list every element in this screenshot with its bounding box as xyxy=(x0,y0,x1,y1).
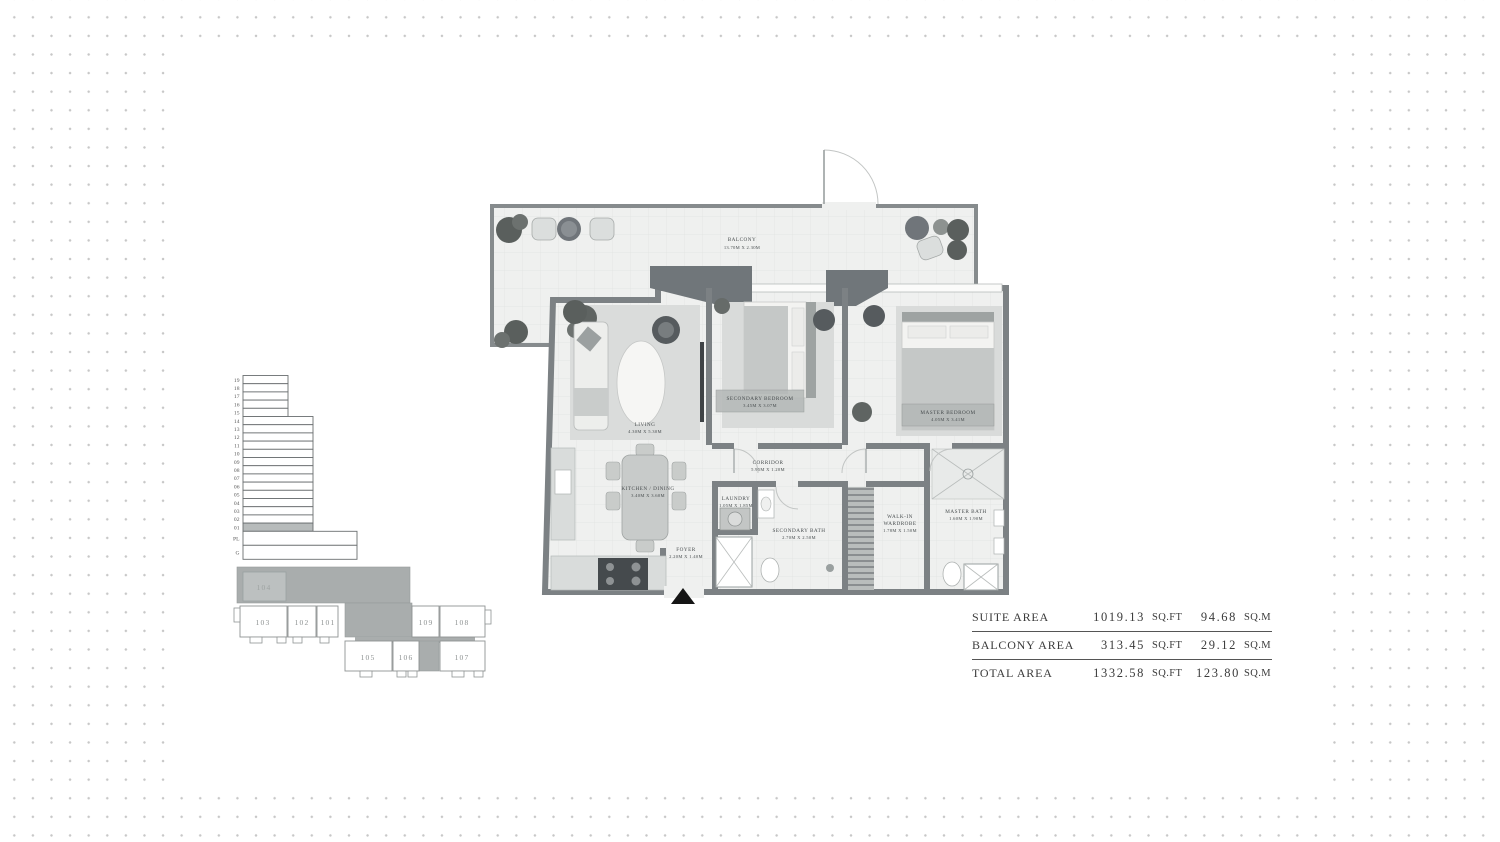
bed-headboard xyxy=(902,312,994,322)
living-room xyxy=(567,305,704,440)
elevation-floor-row-11 xyxy=(243,441,313,449)
elevation-floor-row-10 xyxy=(243,449,313,457)
elevation-floor-label-12: 12 xyxy=(234,435,240,441)
area-label: BALCONY AREA xyxy=(972,638,1090,653)
secondary-bedroom xyxy=(714,298,835,428)
plant-icon xyxy=(852,402,872,422)
area-label: SUITE AREA xyxy=(972,610,1090,625)
building-elevation: 19181716151413121110090807060504030201PL… xyxy=(233,376,357,560)
plant-icon xyxy=(714,298,730,314)
elevation-floor-row-05 xyxy=(243,490,313,498)
kitchen-dining-label: KITCHEN / DINING xyxy=(621,486,674,492)
entry-door-arc xyxy=(824,150,878,204)
foyer-label: FOYER xyxy=(676,547,696,553)
pillow xyxy=(792,308,804,346)
floor-plan-drawing: 19181716151413121110090807060504030201PL… xyxy=(0,0,1500,842)
elevation-floor-label-11: 11 xyxy=(234,443,240,449)
area-row-suite: SUITE AREA 1019.13 SQ.FT 94.68 SQ.M xyxy=(972,604,1272,632)
kitchen-dining-dims: 3.40M X 3.60M xyxy=(631,493,665,498)
toilet xyxy=(943,562,961,586)
balcony-stool xyxy=(933,219,949,235)
burner xyxy=(606,563,614,571)
elevation-floor-label-16: 16 xyxy=(234,402,240,408)
unit-label-107: 107 xyxy=(455,653,470,662)
balcony-table xyxy=(905,216,929,240)
balcony-dims: 13.70M X 2.30M xyxy=(724,245,760,250)
balcony-chair xyxy=(590,218,614,240)
elevation-floor-row-17 xyxy=(243,392,288,400)
elevation-floor-row-G xyxy=(243,545,357,559)
area-sqft-unit: SQ.FT xyxy=(1152,640,1196,651)
living-dims: 4.30M X 5.30M xyxy=(628,429,662,434)
apartment-floor-plan: BALCONY 13.70M X 2.30M LIVING 4.30M X 5.… xyxy=(492,150,1006,604)
unit-label-103: 103 xyxy=(256,618,271,627)
elevation-floor-label-02: 02 xyxy=(234,517,240,523)
elevation-floor-label-14: 14 xyxy=(234,419,240,425)
laundry-label: LAUNDRY xyxy=(722,496,751,502)
area-sqm-value: 29.12 xyxy=(1196,638,1244,653)
unit-label-105: 105 xyxy=(361,653,376,662)
stove xyxy=(598,558,648,590)
key-plan-mass-center xyxy=(345,603,412,637)
elevation-floor-label-G: G xyxy=(235,551,239,557)
elevation-floor-label-19: 19 xyxy=(234,378,240,384)
dining-chair xyxy=(636,540,654,552)
area-sqft-value: 1019.13 xyxy=(1090,610,1152,625)
washing-machine-door xyxy=(728,512,742,526)
burner xyxy=(632,563,641,572)
elevation-floor-label-01: 01 xyxy=(234,525,240,531)
dining-chair xyxy=(672,462,686,480)
unit-label-109: 109 xyxy=(419,618,434,627)
area-table: SUITE AREA 1019.13 SQ.FT 94.68 SQ.M BALC… xyxy=(972,604,1272,687)
plant-icon xyxy=(563,300,587,324)
unit-key-plan: 104 103 102 101 109 108 105 106 107 xyxy=(234,567,491,677)
shower-drain xyxy=(826,564,834,572)
elevation-floor-row-04 xyxy=(243,499,313,507)
elevation-floor-row-06 xyxy=(243,482,313,490)
living-label: LIVING xyxy=(635,422,656,428)
elevation-floor-row-03 xyxy=(243,507,313,515)
elevation-floor-row-14 xyxy=(243,417,313,425)
area-sqm-unit: SQ.M xyxy=(1244,612,1272,623)
armchair xyxy=(813,309,835,331)
plant-icon xyxy=(512,214,528,230)
sink xyxy=(994,510,1004,526)
key-plan-mass-small xyxy=(419,641,439,671)
elevation-floor-row-15 xyxy=(243,408,288,416)
elevation-floor-label-09: 09 xyxy=(234,460,240,466)
tv-console xyxy=(700,342,704,422)
unit-label-102: 102 xyxy=(295,618,310,627)
secondary-bedroom-dims: 3.45M X 3.07M xyxy=(743,403,777,408)
elevation-floor-row-02 xyxy=(243,515,313,523)
master-bath-label: MASTER BATH xyxy=(945,509,986,515)
master-bath-dims: 1.60M X 1.90M xyxy=(949,516,983,521)
elevation-floor-label-05: 05 xyxy=(234,493,240,499)
secondary-bath-label: SECONDARY BATH xyxy=(772,528,825,534)
master-bedroom-label: MASTER BEDROOM xyxy=(920,410,975,416)
armchair-cushion xyxy=(658,322,674,338)
sink xyxy=(761,497,771,511)
wardrobe-shelving xyxy=(848,487,874,590)
elevation-floor-row-18 xyxy=(243,384,288,392)
corridor-dims: 5.95M X 1.20M xyxy=(751,467,785,472)
area-label: TOTAL AREA xyxy=(972,666,1090,681)
secondary-bath-dims: 2.70M X 2.50M xyxy=(782,535,816,540)
elevation-floor-label-18: 18 xyxy=(234,386,240,392)
wardrobe-label-line2: WARDROBE xyxy=(883,521,916,527)
toilet xyxy=(761,558,779,582)
plant-icon xyxy=(947,240,967,260)
wardrobe-dims: 1.78M X 1.50M xyxy=(883,528,917,533)
coffee-table xyxy=(617,341,665,425)
area-sqft-value: 313.45 xyxy=(1090,638,1152,653)
dining-chair xyxy=(636,444,654,456)
area-sqm-value: 123.80 xyxy=(1196,666,1244,681)
elevation-floor-row-PL xyxy=(243,531,357,545)
burner xyxy=(606,577,614,585)
secondary-bedroom-label: SECONDARY BEDROOM xyxy=(727,396,794,402)
plant-icon xyxy=(947,219,969,241)
elevation-floor-row-08 xyxy=(243,466,313,474)
unit-label-104: 104 xyxy=(257,583,272,592)
laundry xyxy=(720,508,750,530)
unit-label-106: 106 xyxy=(399,653,414,662)
unit-label-101: 101 xyxy=(321,618,336,627)
laundry-dims: 1.05M X 1.85M xyxy=(719,503,753,508)
area-sqft-value: 1332.58 xyxy=(1090,666,1152,681)
balcony-table-top xyxy=(561,221,577,237)
elevation-floor-row-16 xyxy=(243,400,288,408)
balcony-chair xyxy=(532,218,556,240)
burner xyxy=(632,577,641,586)
area-sqm-unit: SQ.M xyxy=(1244,668,1272,679)
area-sqft-unit: SQ.FT xyxy=(1152,668,1196,679)
sink xyxy=(994,538,1004,554)
elevation-floor-label-06: 06 xyxy=(234,484,240,490)
elevation-floor-row-13 xyxy=(243,425,313,433)
wardrobe-label-line1: WALK-IN xyxy=(887,514,913,520)
elevation-floor-row-12 xyxy=(243,433,313,441)
elevation-floor-row-09 xyxy=(243,458,313,466)
elevation-floor-row-01 xyxy=(243,523,313,531)
dining-chair xyxy=(606,462,620,480)
area-sqm-unit: SQ.M xyxy=(1244,640,1272,651)
area-sqm-value: 94.68 xyxy=(1196,610,1244,625)
kitchen-sink xyxy=(555,470,571,494)
elevation-floor-label-03: 03 xyxy=(234,509,240,515)
area-sqft-unit: SQ.FT xyxy=(1152,612,1196,623)
elevation-floor-label-08: 08 xyxy=(234,468,240,474)
elevation-floor-label-17: 17 xyxy=(234,394,240,400)
master-bedroom-dims: 4.05M X 3.41M xyxy=(931,417,965,422)
sofa-blanket xyxy=(574,388,608,416)
entry-door-gap xyxy=(822,202,876,210)
elevation-floor-label-15: 15 xyxy=(234,411,240,417)
bed-blanket xyxy=(744,306,788,394)
dining-chair xyxy=(672,492,686,510)
pillow xyxy=(950,326,988,338)
pillow xyxy=(908,326,946,338)
elevation-floor-label-13: 13 xyxy=(234,427,240,433)
elevation-floor-label-10: 10 xyxy=(234,452,240,458)
unit-label-108: 108 xyxy=(455,618,470,627)
plant-icon xyxy=(494,332,510,348)
elevation-floor-label-07: 07 xyxy=(234,476,240,482)
dining-chair xyxy=(606,492,620,510)
pillow xyxy=(792,352,804,390)
elevation-floor-row-07 xyxy=(243,474,313,482)
area-row-total: TOTAL AREA 1332.58 SQ.FT 123.80 SQ.M xyxy=(972,660,1272,687)
area-row-balcony: BALCONY AREA 313.45 SQ.FT 29.12 SQ.M xyxy=(972,632,1272,660)
elevation-floor-label-PL: PL xyxy=(233,537,240,543)
foyer-dims: 2.20M X 1.40M xyxy=(669,554,703,559)
balcony-label: BALCONY xyxy=(728,237,757,243)
elevation-floor-row-19 xyxy=(243,376,288,384)
elevation-floor-label-04: 04 xyxy=(234,501,240,507)
building-elevation-rows: 19181716151413121110090807060504030201PL… xyxy=(233,376,357,560)
corridor-label: CORRIDOR xyxy=(753,460,784,466)
armchair xyxy=(863,305,885,327)
